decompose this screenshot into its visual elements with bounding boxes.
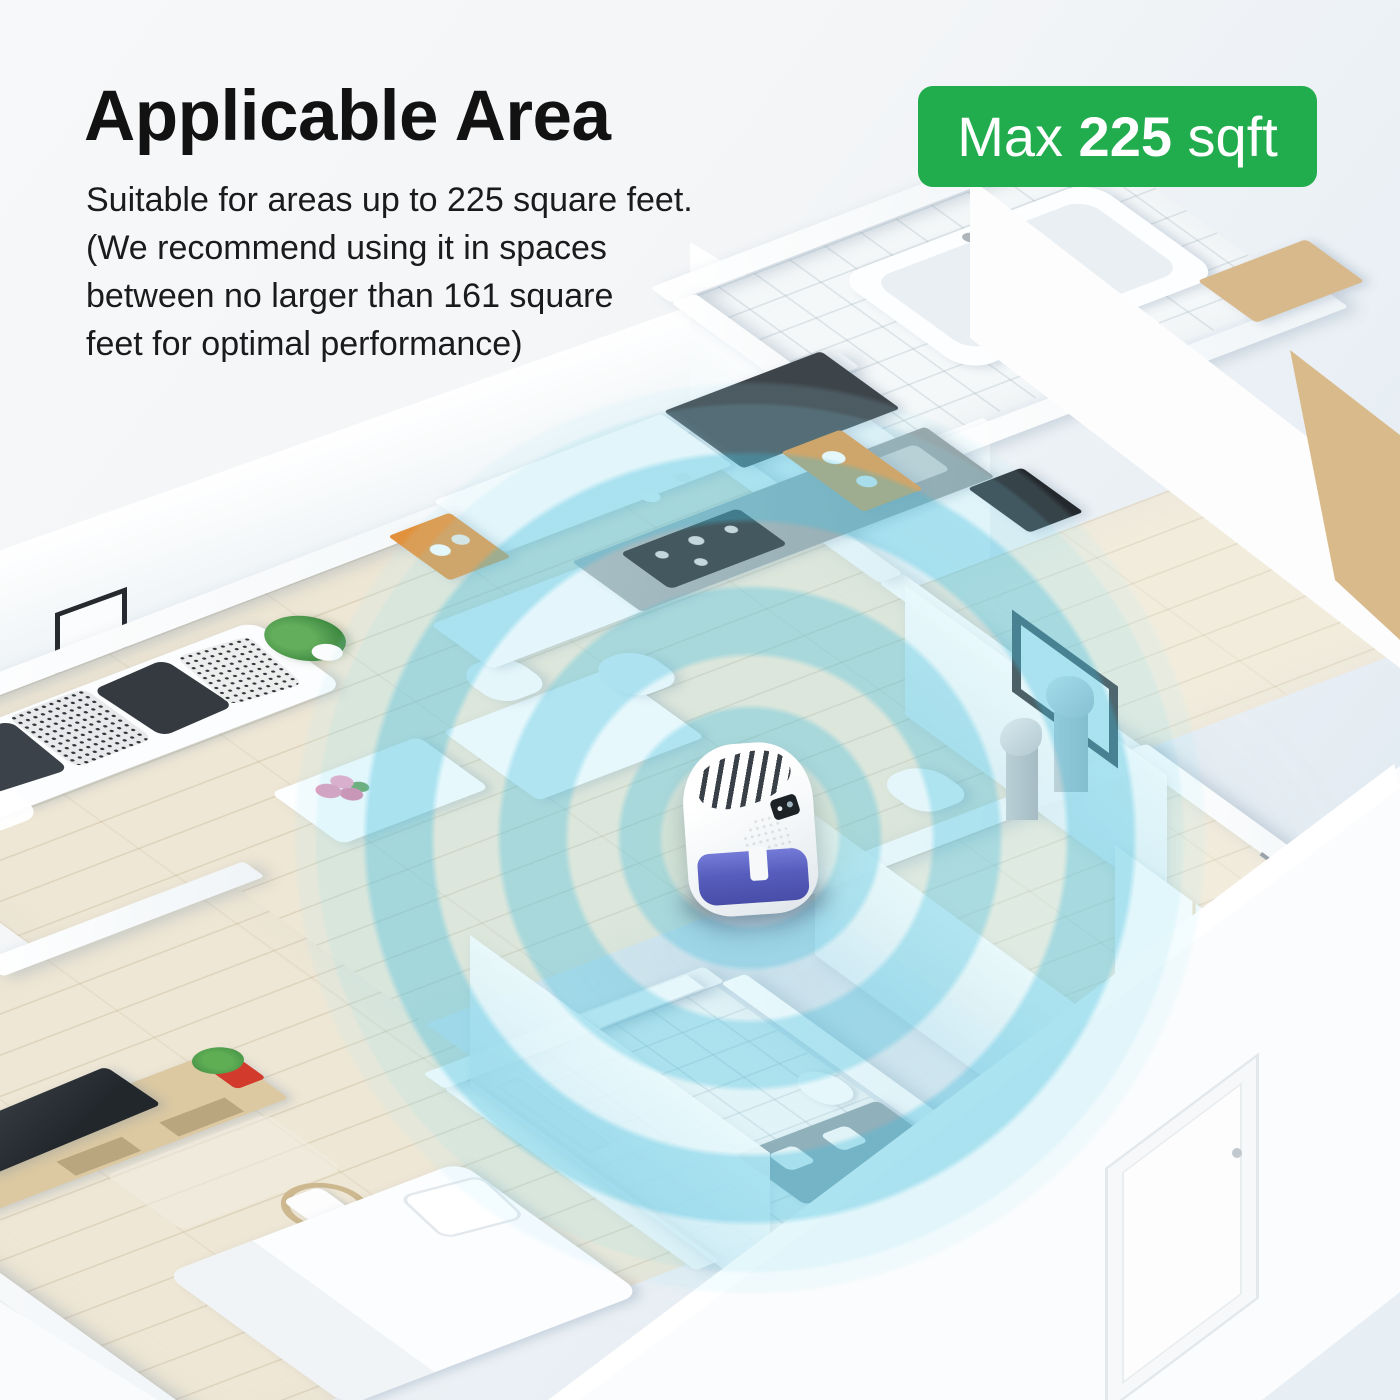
device-tank-divider — [748, 846, 768, 881]
dehumidifier-coverage-infographic: Applicable Area Suitable for areas up to… — [0, 0, 1400, 1400]
dehumidifier — [679, 739, 821, 920]
description-text: Suitable for areas up to 225 square feet… — [86, 176, 926, 368]
max-area-badge: Max 225 sqft — [918, 86, 1317, 187]
page-title: Applicable Area — [84, 76, 611, 157]
badge-prefix: Max — [957, 104, 1078, 169]
door-handle — [1232, 1148, 1242, 1158]
badge-value: 225 — [1079, 104, 1172, 169]
badge-suffix: sqft — [1172, 104, 1278, 169]
exterior-wall-bottom-left — [0, 1302, 158, 1400]
